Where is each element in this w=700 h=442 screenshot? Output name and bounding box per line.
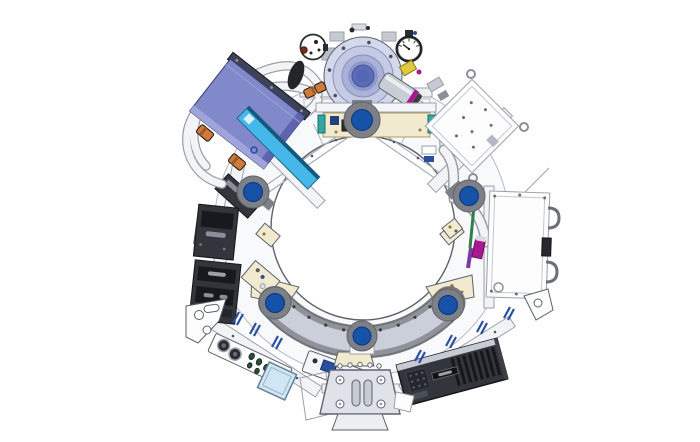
mount-disc-bottom — [347, 321, 377, 351]
magenta-dot — [417, 70, 422, 75]
lift-ring-right — [520, 123, 528, 131]
teal-cap-left — [318, 115, 325, 133]
tall-white-panel — [486, 168, 559, 320]
bracket-foot — [332, 414, 388, 430]
navy-block — [330, 116, 339, 125]
valve-red-knob — [301, 47, 307, 53]
mount-disc-lower-left — [259, 287, 291, 319]
panel-latch — [542, 238, 552, 256]
small-bottom-bracket — [394, 392, 414, 412]
mount-disc-lower-right — [432, 289, 464, 321]
electronics-module-upper — [193, 204, 238, 260]
illustration-canvas — [0, 0, 700, 442]
lift-ring-top — [467, 70, 475, 78]
gantry-illustration — [0, 0, 700, 442]
